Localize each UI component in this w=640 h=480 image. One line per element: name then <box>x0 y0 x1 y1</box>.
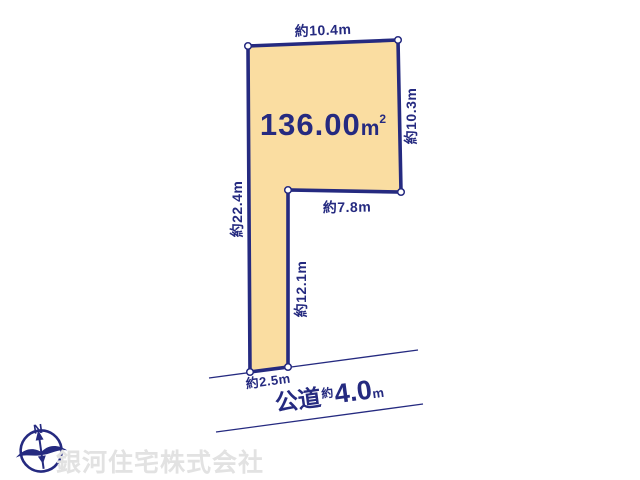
dimension-pole-edge: 約12.1m <box>291 261 311 318</box>
dimension-left-edge: 約22.4m <box>227 181 247 238</box>
lot-area-unit-sup: 2 <box>379 112 387 126</box>
road-approx-label: 約 <box>320 385 334 400</box>
lot-area-value: 136.00 <box>260 107 361 142</box>
dimension-top-edge: 約10.4m <box>294 19 351 41</box>
lot-area-label: 136.00m2 <box>260 107 388 143</box>
dimension-middle-edge: 約7.8m <box>323 197 372 218</box>
company-watermark: 銀河住宅株式会社 <box>56 443 264 479</box>
road-near-edge-line <box>209 350 418 378</box>
road-name: 公道 <box>273 384 322 416</box>
corner-marker <box>285 187 292 194</box>
dimension-right-edge: 約10.3m <box>401 88 421 145</box>
compass-north-label: N <box>32 421 43 437</box>
corner-marker <box>245 43 252 50</box>
road-width-value: 4.0 <box>333 374 374 409</box>
road-width-unit: m <box>371 385 384 401</box>
corner-marker <box>395 37 402 44</box>
land-plot-diagram: N 約10.4m 約10.3m 約22.4m 約7.8m 約12.1m 約2.5… <box>0 0 640 480</box>
corner-marker <box>398 189 405 196</box>
lot-area-unit: m <box>361 117 381 140</box>
